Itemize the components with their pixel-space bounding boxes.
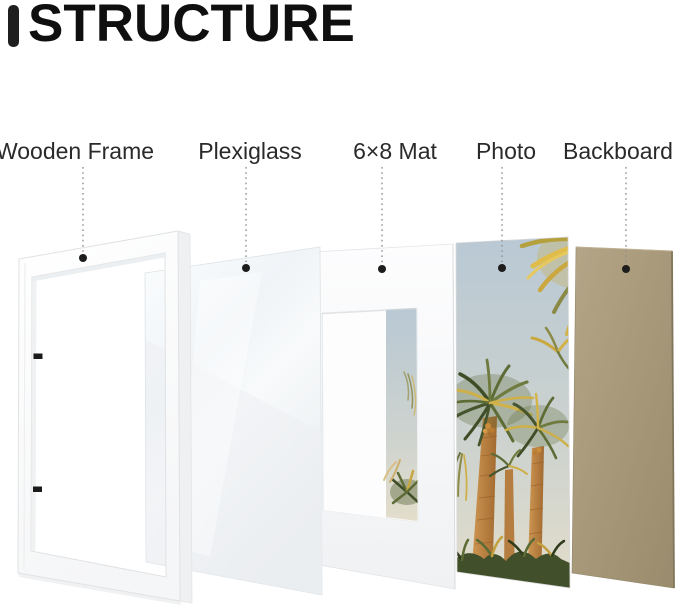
callout-dot-photo bbox=[498, 264, 506, 272]
mat-window-view bbox=[318, 304, 424, 528]
callout-dot-backboard bbox=[622, 265, 630, 273]
infographic-canvas: STRUCTURE Wooden Frame Plexiglass 6×8 Ma… bbox=[0, 0, 679, 605]
backboard-layer bbox=[572, 247, 674, 588]
wooden-frame-layer bbox=[18, 231, 192, 605]
callout-dot-plexiglass bbox=[242, 264, 250, 272]
callout-dot-mat bbox=[378, 265, 386, 273]
exploded-layers-illustration bbox=[0, 0, 679, 605]
mat-layer bbox=[313, 244, 455, 589]
callout-dot-wooden-frame bbox=[79, 254, 87, 262]
frame-clip-upper bbox=[34, 354, 43, 360]
frame-clip-lower bbox=[33, 487, 42, 493]
